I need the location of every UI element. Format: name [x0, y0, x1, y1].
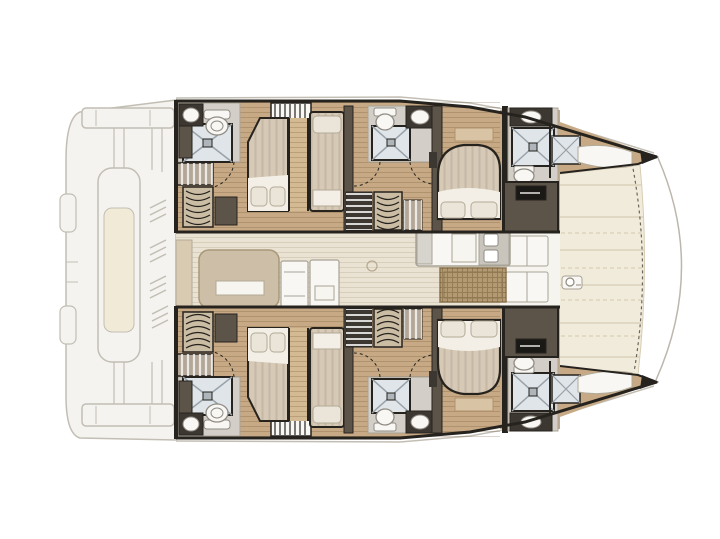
transom-step-upper [60, 194, 76, 232]
bow-shower-pan [552, 136, 580, 164]
galley-island [416, 230, 510, 266]
single-berth [310, 112, 344, 211]
saloon [176, 230, 560, 308]
aft-head-vanity [179, 126, 192, 158]
mid-head-sink [411, 110, 429, 124]
bow-pulpit-faint-curve [656, 158, 682, 380]
deck-fitting [562, 276, 582, 289]
galley-cabinet-b-drawer [315, 286, 334, 300]
aft-cabin [248, 103, 344, 211]
bed-pillow-a [251, 187, 267, 206]
island-pillow-b [471, 202, 497, 218]
nightstand [429, 152, 437, 168]
fwd-head-toilet [514, 166, 534, 183]
single-berth-pillow [313, 116, 341, 133]
dark-floor-mat [215, 197, 237, 225]
saloon-aft-bulkhead [174, 100, 178, 233]
floor-hatch [455, 128, 493, 141]
catamaran-layout-plan [0, 0, 720, 539]
galley-sink-basin-a [484, 234, 498, 246]
galley-sink-basin-b [484, 250, 498, 262]
aft-head-sink [183, 108, 199, 122]
galley-cabinet-a [281, 261, 308, 307]
island-pillow-a [441, 202, 465, 218]
single-berth-sheet [313, 190, 341, 206]
mid-head-toilet [374, 108, 396, 130]
transom-step-lower [60, 306, 76, 344]
sofa-table [216, 281, 264, 295]
aft-bench-cushion [104, 208, 134, 332]
double-bed [248, 118, 288, 211]
mid-head-shower [372, 126, 410, 160]
woven-floor-mat [440, 268, 506, 302]
saloon-sofa [199, 250, 279, 308]
aft-head-toilet [204, 110, 230, 135]
floor-plan-svg [0, 0, 720, 539]
aft-settee-back [176, 240, 192, 306]
island-double-bed [438, 145, 500, 219]
bed-pillow-b [270, 187, 285, 206]
fwd-head-shower [512, 128, 554, 166]
